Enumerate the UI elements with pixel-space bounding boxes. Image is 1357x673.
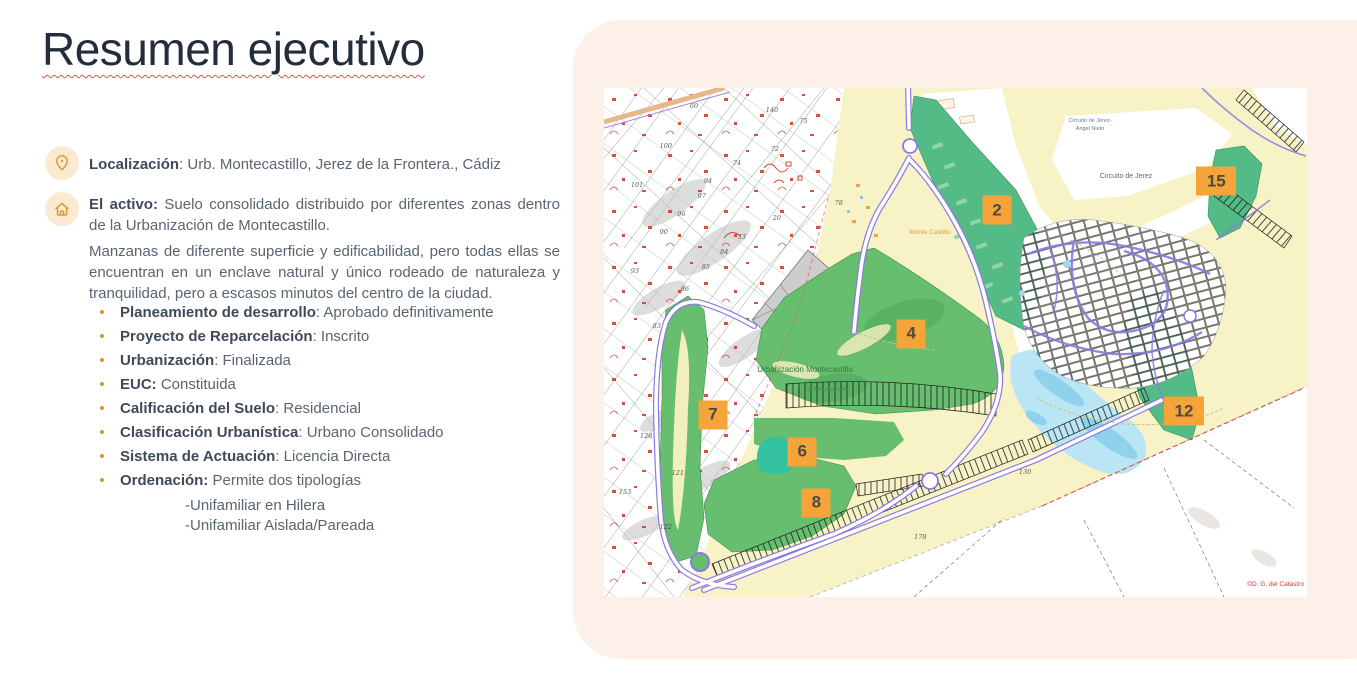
- bullet-dot: [100, 310, 104, 314]
- home-icon: [45, 192, 79, 226]
- location-row: Localización: Urb. Montecastillo, Jerez …: [45, 146, 560, 180]
- bullet-dot: [100, 358, 104, 362]
- map-marker-12: 12: [1164, 397, 1204, 426]
- parcel-number: 90: [660, 228, 668, 236]
- bullet-dot: [100, 406, 104, 410]
- summary-panel: Localización: Urb. Montecastillo, Jerez …: [45, 146, 560, 316]
- map-marker-8: 8: [802, 488, 831, 517]
- map-marker-6: 6: [788, 437, 817, 466]
- asset-row: El activo: Suelo consolidado distribuido…: [45, 192, 560, 304]
- parcel-number: 78: [835, 199, 843, 207]
- map-marker-7: 7: [698, 400, 727, 429]
- bullet-dot: [100, 430, 104, 434]
- parcel-number: 178: [914, 533, 926, 541]
- key-facts-list: Planeamiento de desarrollo: Aprobado def…: [100, 304, 562, 536]
- parcel-number: 75: [800, 117, 808, 125]
- parcel-number: 101: [631, 181, 643, 189]
- location-pin-icon: [45, 146, 79, 180]
- bullet-dot: [100, 334, 104, 338]
- asset-paragraph-1: El activo: Suelo consolidado distribuido…: [89, 194, 560, 236]
- parcel-number: 33: [738, 233, 746, 241]
- location-text: Localización: Urb. Montecastillo, Jerez …: [89, 146, 560, 175]
- parcel-number: 86: [681, 285, 689, 293]
- parcel-number: 60: [690, 102, 698, 110]
- parcel-number: 97: [698, 192, 706, 200]
- parcel-number: 122: [660, 523, 672, 531]
- page-title: Resumen ejecutivo: [42, 22, 425, 76]
- sub-bullet-aislada: -Unifamiliar Aislada/Pareada: [185, 516, 562, 536]
- bullet-dot: [100, 454, 104, 458]
- parcel-number: 84: [720, 248, 728, 256]
- parcel-number: 128: [640, 432, 652, 440]
- bullet-euc: EUC: Constituida: [100, 376, 562, 394]
- bullet-reparcelacion: Proyecto de Reparcelación: Inscrito: [100, 328, 562, 346]
- parcel-number: 83: [653, 322, 661, 330]
- bullet-dot: [100, 382, 104, 386]
- sub-bullet-hilera: -Unifamiliar en Hilera: [185, 496, 562, 516]
- parcel-number: 100: [660, 142, 672, 150]
- location-label: Localización: [89, 156, 179, 173]
- bullet-clasificacion: Clasificación Urbanística: Urbano Consol…: [100, 424, 562, 442]
- parcel-number: 93: [631, 267, 639, 275]
- map-marker-2: 2: [982, 196, 1011, 225]
- asset-label: El activo:: [89, 196, 158, 213]
- parcel-number: 20: [773, 214, 781, 222]
- parcel-number: 72: [771, 145, 779, 153]
- asset-paragraph-2: Manzanas de diferente superficie y edifi…: [89, 241, 560, 304]
- parcel-number: 74: [733, 159, 741, 167]
- bullet-calificacion: Calificación del Suelo: Residencial: [100, 400, 562, 418]
- bullet-ordenacion: Ordenación: Permite dos tipologías: [100, 472, 562, 490]
- parcel-number: 96: [677, 210, 685, 218]
- location-value: : Urb. Montecastillo, Jerez de la Fronte…: [179, 156, 501, 173]
- right-panel: Circuito de Jérez- Angel Nieto Circuito …: [573, 20, 1357, 659]
- asset-text: El activo: Suelo consolidado distribuido…: [89, 192, 560, 304]
- bullet-planeamiento: Planeamiento de desarrollo: Aprobado def…: [100, 304, 562, 322]
- parcel-number: 85: [702, 263, 710, 271]
- parcel-number: 94: [704, 177, 712, 185]
- bullet-urbanizacion: Urbanización: Finalizada: [100, 352, 562, 370]
- map-marker-15: 15: [1196, 167, 1236, 196]
- asset-value: Suelo consolidado distribuido por difere…: [89, 196, 560, 234]
- bullet-dot: [100, 478, 104, 482]
- parcel-number: 121: [672, 469, 684, 477]
- parcel-number: 130: [1019, 468, 1031, 476]
- bullet-sistema: Sistema de Actuación: Licencia Directa: [100, 448, 562, 466]
- parcel-number: 153: [619, 488, 631, 496]
- map-overlay: 6014010075727410194979690332078938584868…: [604, 88, 1307, 597]
- map: Circuito de Jérez- Angel Nieto Circuito …: [604, 88, 1307, 597]
- parcel-number: 140: [766, 106, 778, 114]
- map-marker-4: 4: [897, 319, 926, 348]
